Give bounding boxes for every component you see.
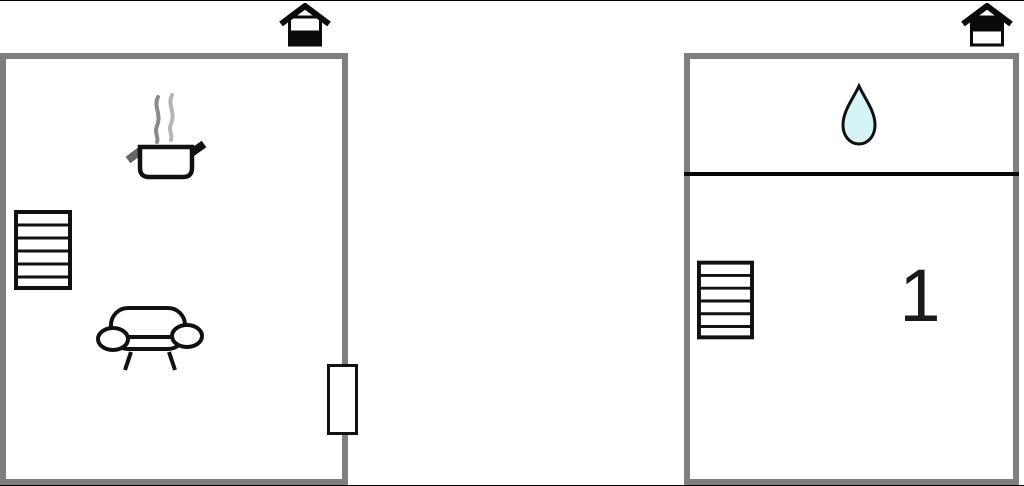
partition-wall (684, 172, 1019, 176)
house-ground-floor-icon (278, 3, 332, 47)
sofa-icon (95, 304, 207, 376)
stairs-icon (697, 260, 754, 340)
floorplan-canvas: 1 (0, 0, 1024, 486)
stairs-icon (14, 210, 72, 290)
house-upper-floor-icon (960, 3, 1014, 47)
water-drop-icon (839, 83, 879, 147)
room-number-label: 1 (875, 261, 965, 331)
cooking-pot-icon (118, 89, 210, 181)
door-icon (327, 364, 358, 435)
